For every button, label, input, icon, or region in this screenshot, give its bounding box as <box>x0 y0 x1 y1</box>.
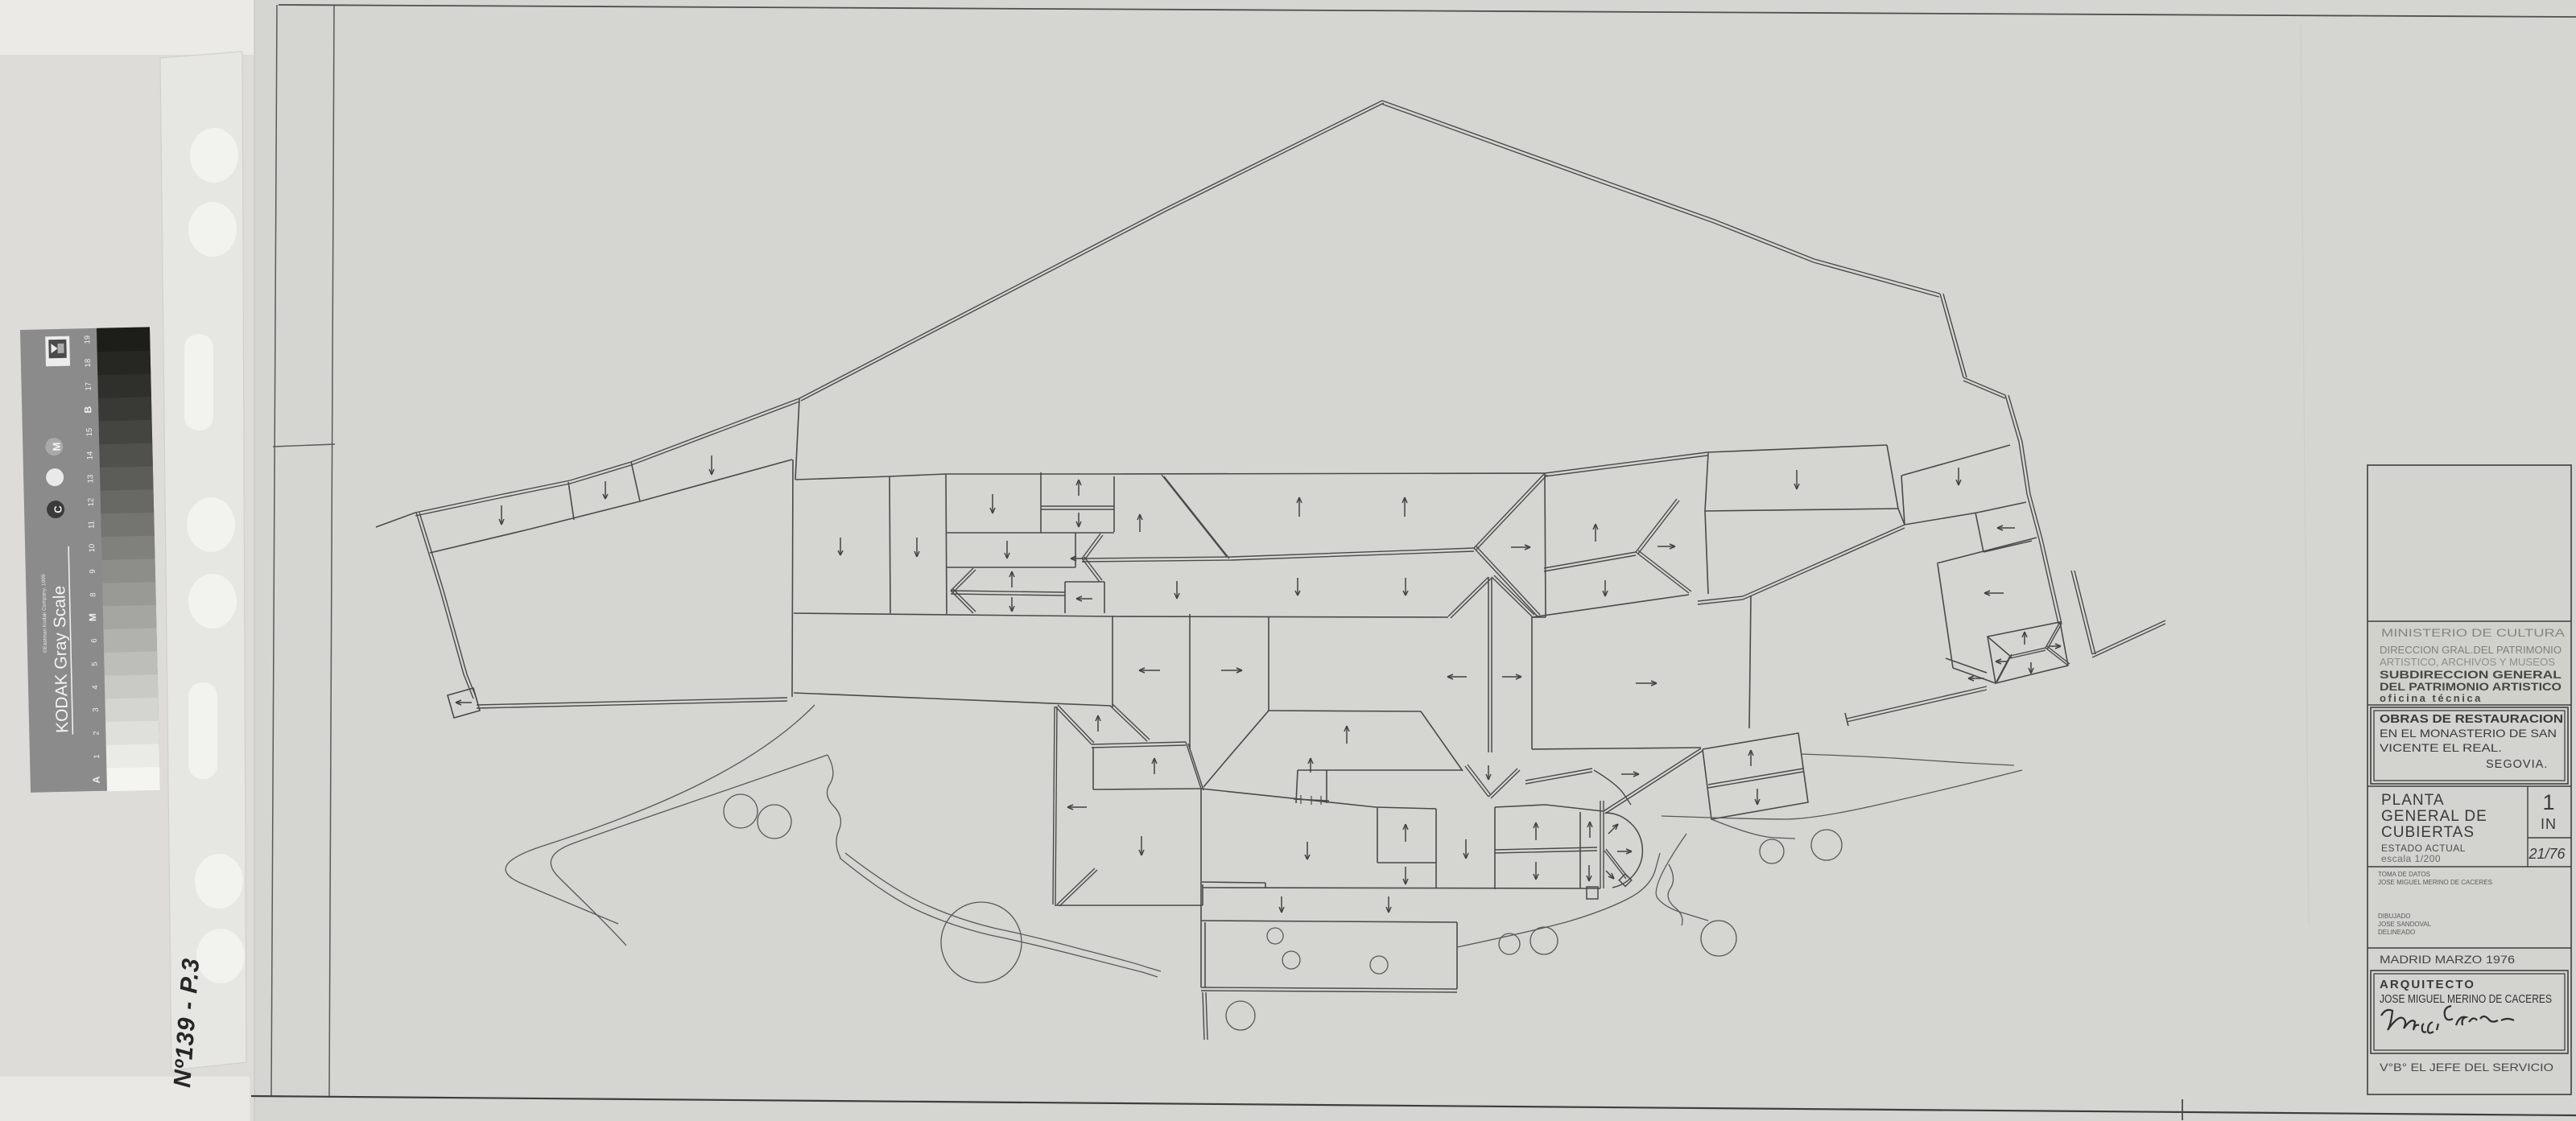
svg-text:EN EL MONASTERIO DE SAN: EN EL MONASTERIO DE SAN <box>2380 727 2557 740</box>
svg-text:4: 4 <box>91 685 100 690</box>
svg-text:19: 19 <box>83 336 92 344</box>
svg-text:OBRAS DE RESTAURACION: OBRAS DE RESTAURACION <box>2380 713 2563 726</box>
svg-text:CUBIERTAS: CUBIERTAS <box>2381 824 2475 841</box>
svg-text:1: 1 <box>2542 790 2554 814</box>
svg-text:GENERAL DE: GENERAL DE <box>2381 808 2487 825</box>
svg-text:MINISTERIO DE CULTURA: MINISTERIO DE CULTURA <box>2381 627 2565 639</box>
svg-text:oficina técnica: oficina técnica <box>2380 692 2483 704</box>
svg-text:3: 3 <box>92 707 101 712</box>
svg-text:escala 1/200: escala 1/200 <box>2381 853 2441 864</box>
svg-text:2: 2 <box>92 731 101 736</box>
svg-text:6: 6 <box>90 638 99 643</box>
svg-text:KODAK Gray Scale: KODAK Gray Scale <box>50 585 72 733</box>
svg-text:8: 8 <box>89 592 97 597</box>
svg-text:17: 17 <box>84 382 93 391</box>
svg-text:DIRECCION GRAL.DEL PATRIMONIO: DIRECCION GRAL.DEL PATRIMONIO <box>2380 645 2562 656</box>
svg-text:VICENTE EL REAL.: VICENTE EL REAL. <box>2380 741 2502 754</box>
svg-text:M: M <box>51 442 63 451</box>
svg-text:ARQUITECTO: ARQUITECTO <box>2380 978 2475 991</box>
svg-text:5: 5 <box>90 661 99 666</box>
svg-text:18: 18 <box>84 359 93 368</box>
svg-text:JOSE SANDOVAL: JOSE SANDOVAL <box>2378 921 2432 928</box>
svg-text:MADRID MARZO 1976: MADRID MARZO 1976 <box>2380 953 2515 966</box>
svg-text:DEL PATRIMONIO ARTISTICO: DEL PATRIMONIO ARTISTICO <box>2380 680 2562 693</box>
svg-text:M: M <box>87 613 98 621</box>
svg-text:JOSE MIGUEL MERINO DE CACERES: JOSE MIGUEL MERINO DE CACERES <box>2380 993 2552 1006</box>
svg-text:C: C <box>52 505 64 513</box>
svg-text:SEGOVIA.: SEGOVIA. <box>2486 758 2548 771</box>
svg-text:15: 15 <box>85 428 94 437</box>
svg-text:21/76: 21/76 <box>2528 846 2566 862</box>
svg-text:13: 13 <box>86 475 95 484</box>
svg-text:V°B° EL JEFE DEL SERVICIO: V°B° EL JEFE DEL SERVICIO <box>2380 1061 2553 1074</box>
svg-text:1: 1 <box>93 754 101 759</box>
svg-text:B: B <box>82 406 93 413</box>
svg-text:14: 14 <box>85 451 94 460</box>
svg-text:A: A <box>91 776 102 783</box>
svg-text:ARTISTICO, ARCHIVOS Y MUSEOS: ARTISTICO, ARCHIVOS Y MUSEOS <box>2380 657 2555 668</box>
svg-text:TOMA DE DATOS: TOMA DE DATOS <box>2378 871 2430 878</box>
svg-text:ESTADO ACTUAL: ESTADO ACTUAL <box>2381 843 2466 854</box>
svg-text:DELINEADO: DELINEADO <box>2378 929 2415 936</box>
svg-text:11: 11 <box>87 521 96 529</box>
svg-text:SUBDIRECCION GENERAL: SUBDIRECCION GENERAL <box>2380 668 2562 681</box>
svg-text:JOSE MIGUEL MERINO DE CACERES: JOSE MIGUEL MERINO DE CACERES <box>2378 879 2492 886</box>
svg-text:9: 9 <box>89 569 97 574</box>
svg-text:PLANTA: PLANTA <box>2381 792 2445 809</box>
svg-text:12: 12 <box>87 498 96 507</box>
svg-text:10: 10 <box>88 544 97 553</box>
svg-text:IN: IN <box>2541 816 2557 832</box>
svg-text:DIBUJADO: DIBUJADO <box>2378 913 2410 920</box>
